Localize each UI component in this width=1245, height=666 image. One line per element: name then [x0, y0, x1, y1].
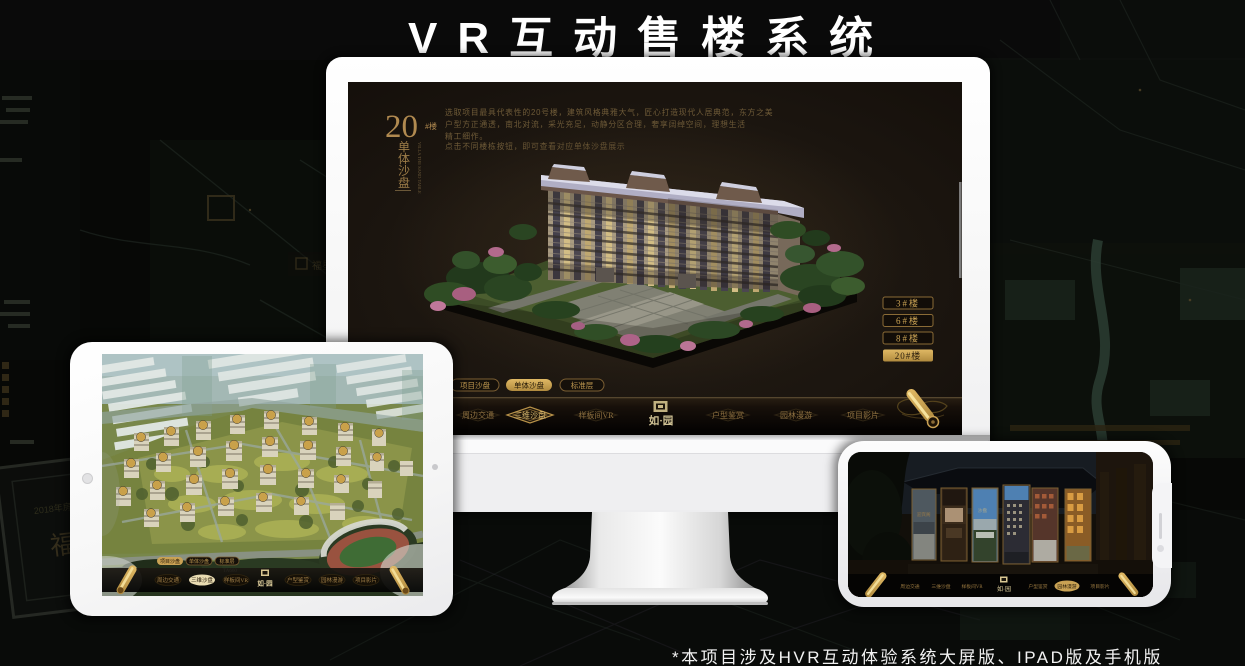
svg-text:园林漫游: 园林漫游 [1057, 583, 1076, 590]
svg-text:精工细作。: 精工细作。 [445, 131, 488, 141]
svg-text:标准层: 标准层 [571, 380, 594, 390]
svg-text:标准层: 标准层 [219, 558, 234, 565]
svg-text:户型鉴赏: 户型鉴赏 [1028, 583, 1047, 590]
svg-text:如·园: 如·园 [649, 414, 674, 427]
svg-text:沙盘: 沙盘 [978, 507, 987, 513]
svg-text:项目影片: 项目影片 [355, 576, 377, 584]
svg-text:户型鉴赏: 户型鉴赏 [287, 576, 310, 584]
svg-text:项目影片: 项目影片 [847, 410, 879, 420]
svg-text:三维沙盘: 三维沙盘 [191, 576, 214, 584]
svg-text:三维沙盘: 三维沙盘 [514, 410, 546, 420]
svg-text:三维沙盘: 三维沙盘 [931, 583, 950, 590]
svg-text:周边交通: 周边交通 [157, 576, 180, 584]
svg-text:样板间VR: 样板间VR [224, 576, 248, 584]
svg-text:单体沙盘: 单体沙盘 [514, 380, 544, 390]
svg-text:8#楼: 8#楼 [896, 333, 920, 344]
svg-text:园林漫游: 园林漫游 [780, 410, 812, 420]
svg-text:样板间VR: 样板间VR [961, 583, 983, 590]
svg-text:#楼: #楼 [425, 121, 437, 131]
svg-text:项目影片: 项目影片 [1090, 583, 1109, 590]
svg-text:如·园: 如·园 [997, 585, 1011, 593]
svg-text:3#楼: 3#楼 [896, 298, 920, 309]
svg-text:样板间VR: 样板间VR [578, 410, 614, 420]
svg-text:盘: 盘 [398, 175, 410, 190]
svg-text:项目沙盘: 项目沙盘 [160, 558, 180, 565]
svg-text:周边交通: 周边交通 [462, 410, 494, 420]
svg-text:项目沙盘: 项目沙盘 [460, 380, 490, 390]
svg-text:园林漫游: 园林漫游 [321, 576, 344, 584]
svg-text:如·园: 如·园 [257, 579, 273, 588]
svg-text:迎宾阁: 迎宾阁 [917, 511, 931, 518]
svg-text:户型鉴赏: 户型鉴赏 [712, 410, 744, 420]
svg-text:单体沙盘: 单体沙盘 [189, 558, 209, 565]
svg-text:20#楼: 20#楼 [895, 350, 922, 361]
svg-text:6#楼: 6#楼 [896, 315, 920, 326]
svg-text:周边交通: 周边交通 [900, 583, 919, 590]
